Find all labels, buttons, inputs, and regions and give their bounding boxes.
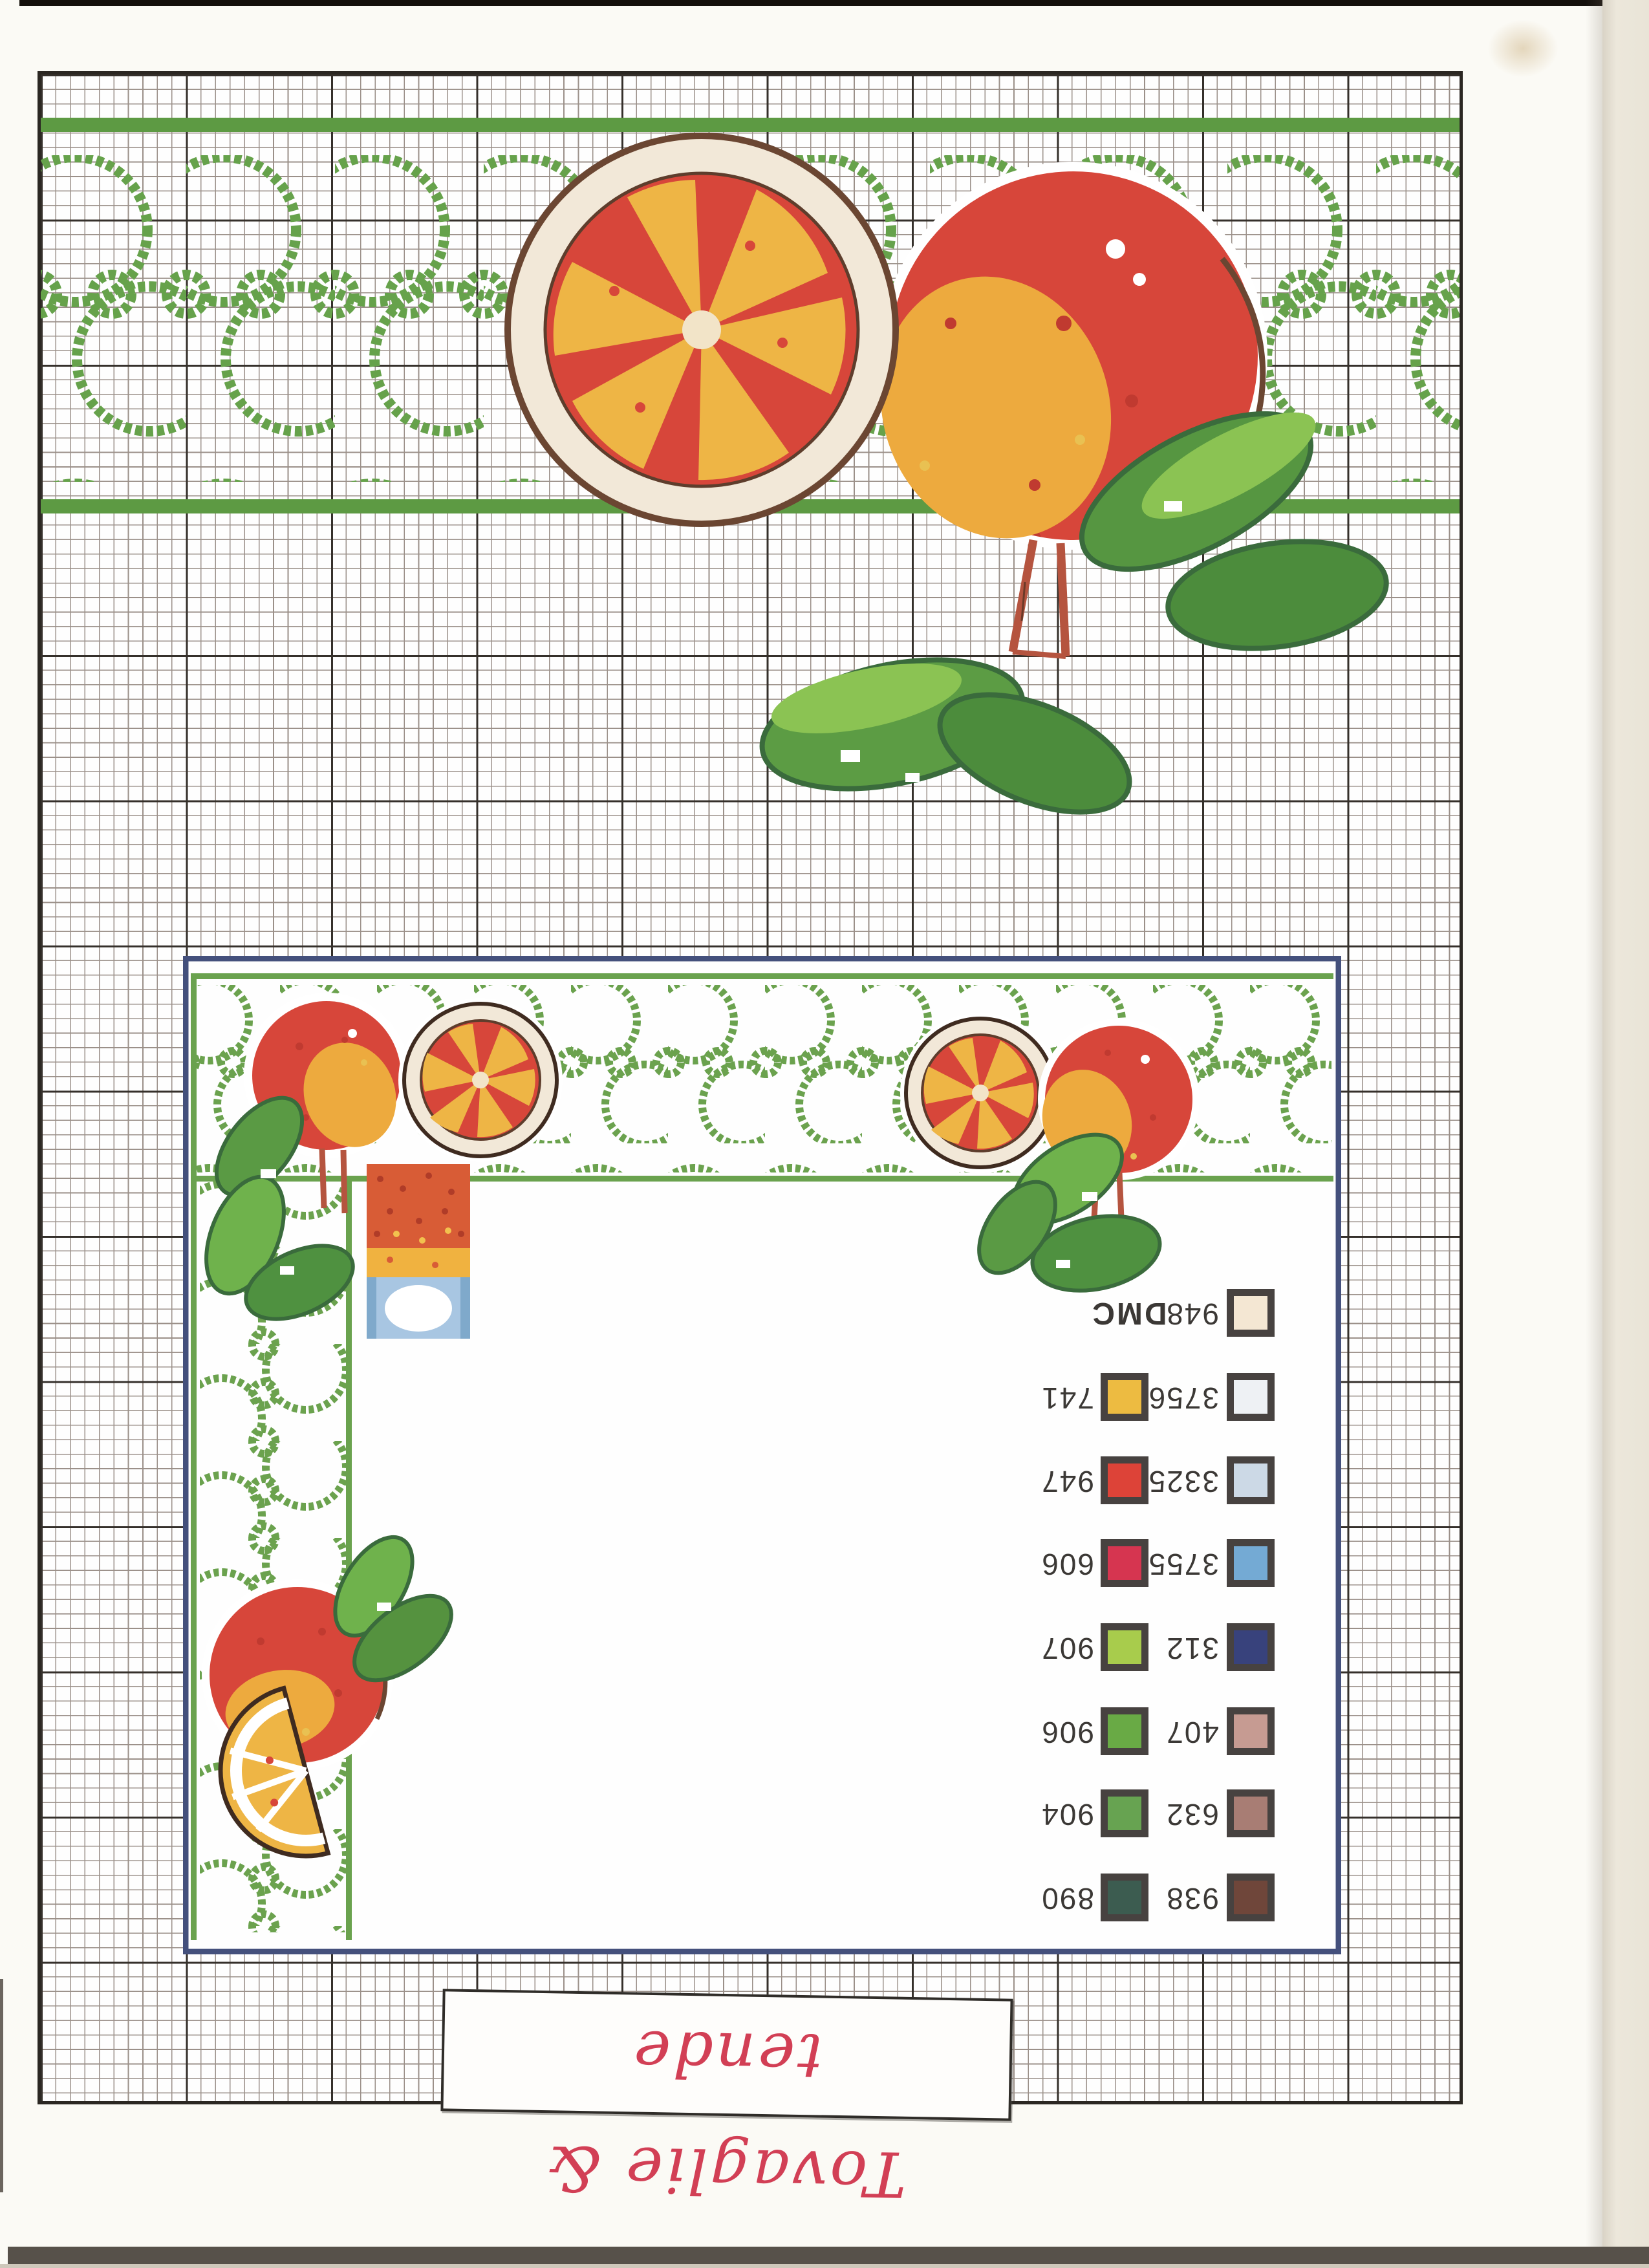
scan-top-edge (19, 0, 1604, 6)
thread-code: 948 (1148, 1297, 1219, 1332)
page-title: Tovaglie & tende (441, 1991, 1010, 2234)
thread-code: 741 (1044, 1381, 1094, 1416)
thread-code: 947 (1044, 1464, 1094, 1499)
page-bottom-strip (0, 2264, 1649, 2268)
title-box: Tovaglie & tende (440, 1989, 1013, 2121)
color-swatch (1227, 1623, 1275, 1671)
legend-row: 904 632 (1048, 1789, 1275, 1837)
legend-row: 606 3755 (1048, 1539, 1275, 1587)
color-swatch (1101, 1789, 1148, 1837)
thread-code: 906 (1044, 1715, 1094, 1750)
color-swatch (1101, 1874, 1148, 1921)
color-swatch (1227, 1874, 1275, 1921)
thread-code: 904 (1044, 1797, 1094, 1832)
scan-smudge (1487, 19, 1558, 78)
color-swatch (1101, 1707, 1148, 1755)
top-fruit-motifs (479, 129, 1423, 854)
thread-code: 890 (1044, 1881, 1094, 1916)
orange-slice-motif (508, 136, 896, 524)
color-swatch (1227, 1539, 1275, 1587)
legend-row: 947 3325 (1048, 1456, 1275, 1504)
legend-row: 906 407 (1048, 1707, 1275, 1755)
thread-code: 3755 (1148, 1547, 1219, 1582)
juice-glass-motif (367, 1164, 470, 1339)
page-right-edge (1602, 0, 1649, 2268)
scan-left-edge (0, 1979, 3, 2192)
dmc-legend: DMC 948 741 3756 947 3325 606 3755 907 3… (1048, 1289, 1275, 1968)
thread-code: 3325 (1148, 1464, 1219, 1499)
color-swatch (1227, 1373, 1275, 1421)
thread-code: 606 (1044, 1547, 1094, 1582)
thread-code: 938 (1148, 1881, 1219, 1916)
thread-code: 3756 (1148, 1381, 1219, 1416)
page-bottom-shadow (8, 2247, 1649, 2265)
corner-slice-top-left (398, 998, 563, 1162)
legend-row: 890 938 (1048, 1874, 1275, 1921)
thread-code: 407 (1148, 1715, 1219, 1750)
color-swatch (1227, 1456, 1275, 1504)
color-swatch (1101, 1456, 1148, 1504)
color-swatch (1227, 1707, 1275, 1755)
scanned-pattern-page: { "page": { "title": "Tovaglie & tende" … (0, 0, 1649, 2268)
thread-code: 312 (1148, 1631, 1219, 1666)
leaf-cluster-bottom (750, 638, 1145, 836)
color-swatch (1101, 1623, 1148, 1671)
legend-row: 741 3756 (1048, 1373, 1275, 1421)
legend-row: DMC 948 (1048, 1289, 1275, 1337)
color-swatch (1227, 1789, 1275, 1837)
thread-code: 632 (1148, 1797, 1219, 1832)
thread-code: 907 (1044, 1631, 1094, 1666)
stem-lines (1013, 540, 1066, 656)
color-swatch (1101, 1373, 1148, 1421)
color-swatch (1101, 1539, 1148, 1587)
color-swatch (1227, 1289, 1275, 1337)
legend-row: 907 312 (1048, 1623, 1275, 1671)
corner-slice-top-right (900, 1013, 1061, 1173)
